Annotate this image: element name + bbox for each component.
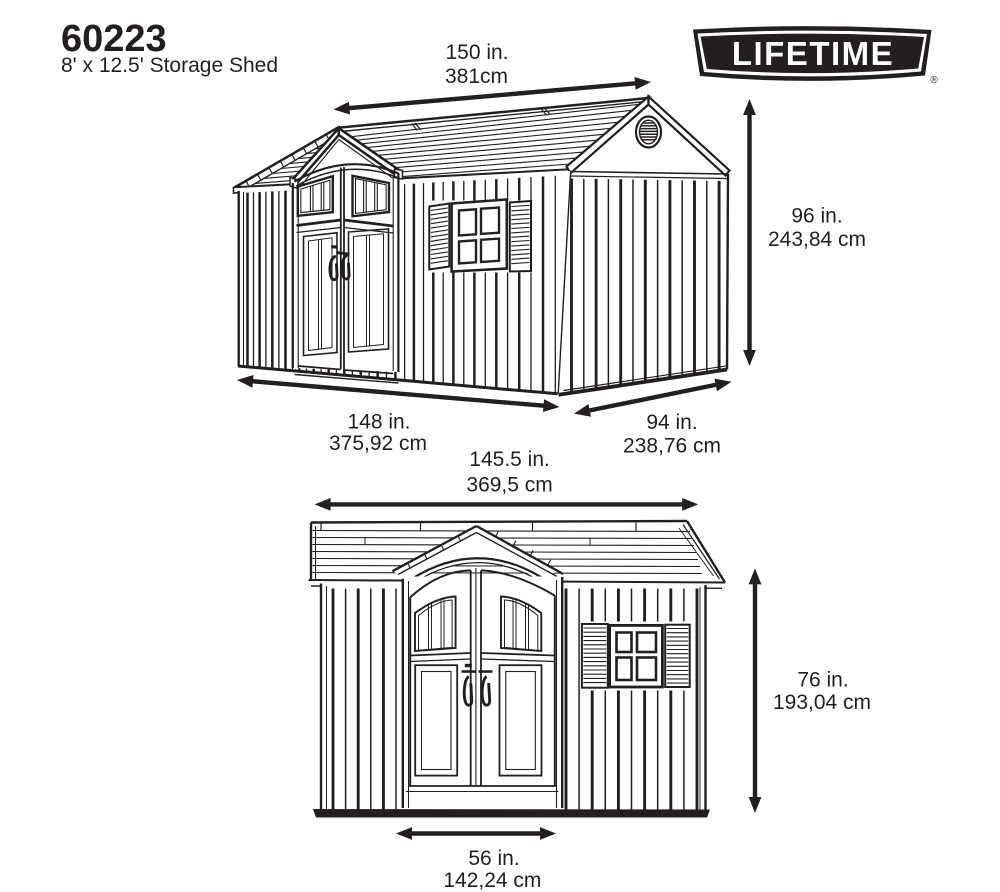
svg-text:94 in.: 94 in.	[646, 411, 697, 434]
svg-text:369,5 cm: 369,5 cm	[466, 474, 552, 497]
svg-text:LIFETIME: LIFETIME	[732, 35, 894, 72]
svg-text:375,92 cm: 375,92 cm	[329, 432, 427, 455]
svg-text:®: ®	[930, 75, 938, 86]
svg-text:76 in.: 76 in.	[797, 669, 848, 692]
svg-text:145.5 in.: 145.5 in.	[469, 448, 550, 471]
svg-text:142,24 cm: 142,24 cm	[443, 869, 541, 892]
svg-text:238,76 cm: 238,76 cm	[623, 435, 721, 458]
svg-text:193,04 cm: 193,04 cm	[773, 691, 871, 714]
svg-text:381cm: 381cm	[445, 65, 508, 88]
svg-text:243,84 cm: 243,84 cm	[768, 228, 866, 251]
svg-text:150 in.: 150 in.	[445, 41, 508, 64]
svg-text:148 in.: 148 in.	[347, 411, 410, 434]
svg-text:8' x 12.5' Storage Shed: 8' x 12.5' Storage Shed	[61, 54, 278, 77]
svg-text:96 in.: 96 in.	[791, 205, 842, 228]
svg-text:56 in.: 56 in.	[468, 847, 519, 870]
